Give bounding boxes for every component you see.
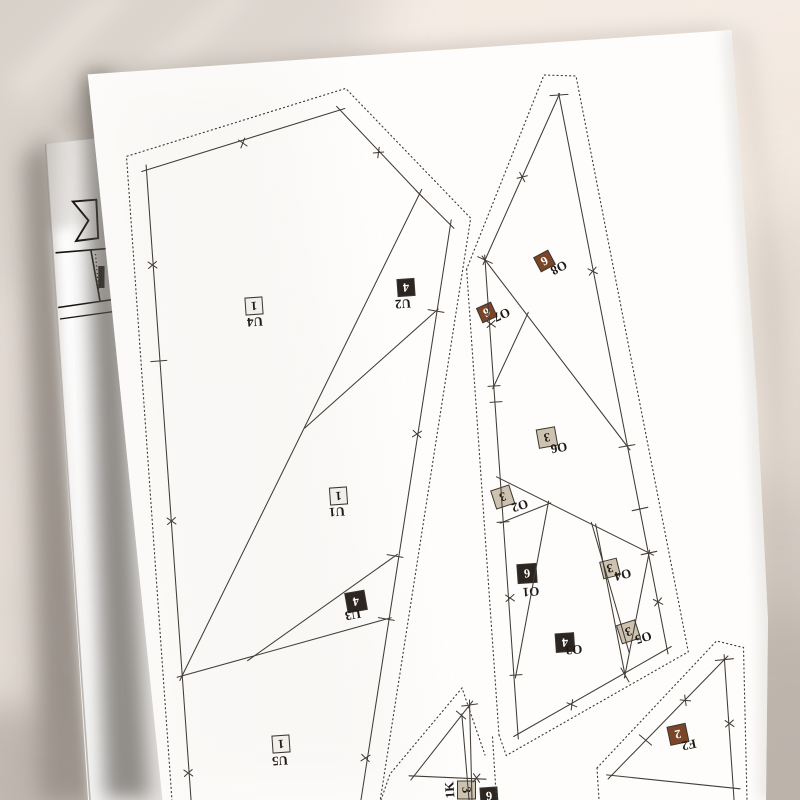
svg-text:1: 1 [277,737,284,751]
svg-text:F2: F2 [680,736,697,754]
svg-text:1: 1 [335,489,342,503]
svg-text:U5: U5 [271,753,288,769]
svg-text:O6: O6 [549,439,568,457]
svg-text:U3: U3 [343,606,362,624]
svg-text:6: 6 [523,566,530,580]
svg-text:6: 6 [485,789,492,800]
svg-text:O3: O3 [565,642,583,658]
svg-text:1K: 1K [441,780,457,799]
svg-text:U1: U1 [329,504,346,520]
svg-text:1: 1 [250,299,257,313]
svg-text:U4: U4 [246,314,263,330]
svg-text:U2: U2 [395,296,412,312]
